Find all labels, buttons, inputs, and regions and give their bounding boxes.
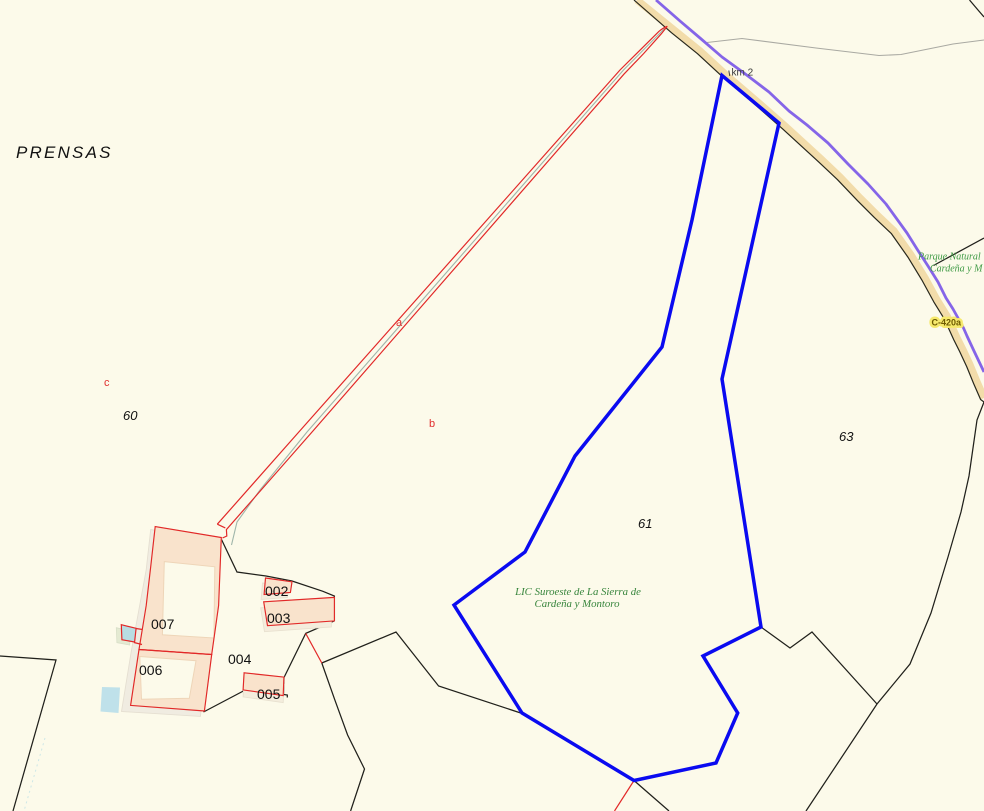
svg-text:007: 007 — [151, 616, 175, 632]
svg-text:b: b — [429, 418, 435, 430]
svg-text:km 2: km 2 — [732, 68, 754, 79]
svg-text:Parque Natural: Parque Natural — [917, 251, 981, 262]
svg-text:002: 002 — [265, 583, 289, 599]
svg-text:005: 005 — [257, 686, 281, 702]
svg-text:60: 60 — [123, 408, 138, 423]
svg-text:c: c — [104, 377, 110, 389]
svg-text:Cardeña y M: Cardeña y M — [930, 263, 983, 274]
svg-text:006: 006 — [139, 662, 163, 678]
svg-text:004: 004 — [228, 651, 252, 667]
svg-text:PRENSAS: PRENSAS — [16, 143, 113, 162]
svg-text:LIC Suroeste de La Sierra de: LIC Suroeste de La Sierra de — [514, 586, 641, 598]
svg-text:C-420a: C-420a — [932, 318, 963, 328]
svg-text:63: 63 — [839, 429, 854, 444]
svg-text:a: a — [396, 317, 403, 329]
svg-text:003: 003 — [267, 610, 291, 626]
svg-text:Cardeña y Montoro: Cardeña y Montoro — [535, 598, 621, 610]
svg-text:61: 61 — [638, 516, 652, 531]
